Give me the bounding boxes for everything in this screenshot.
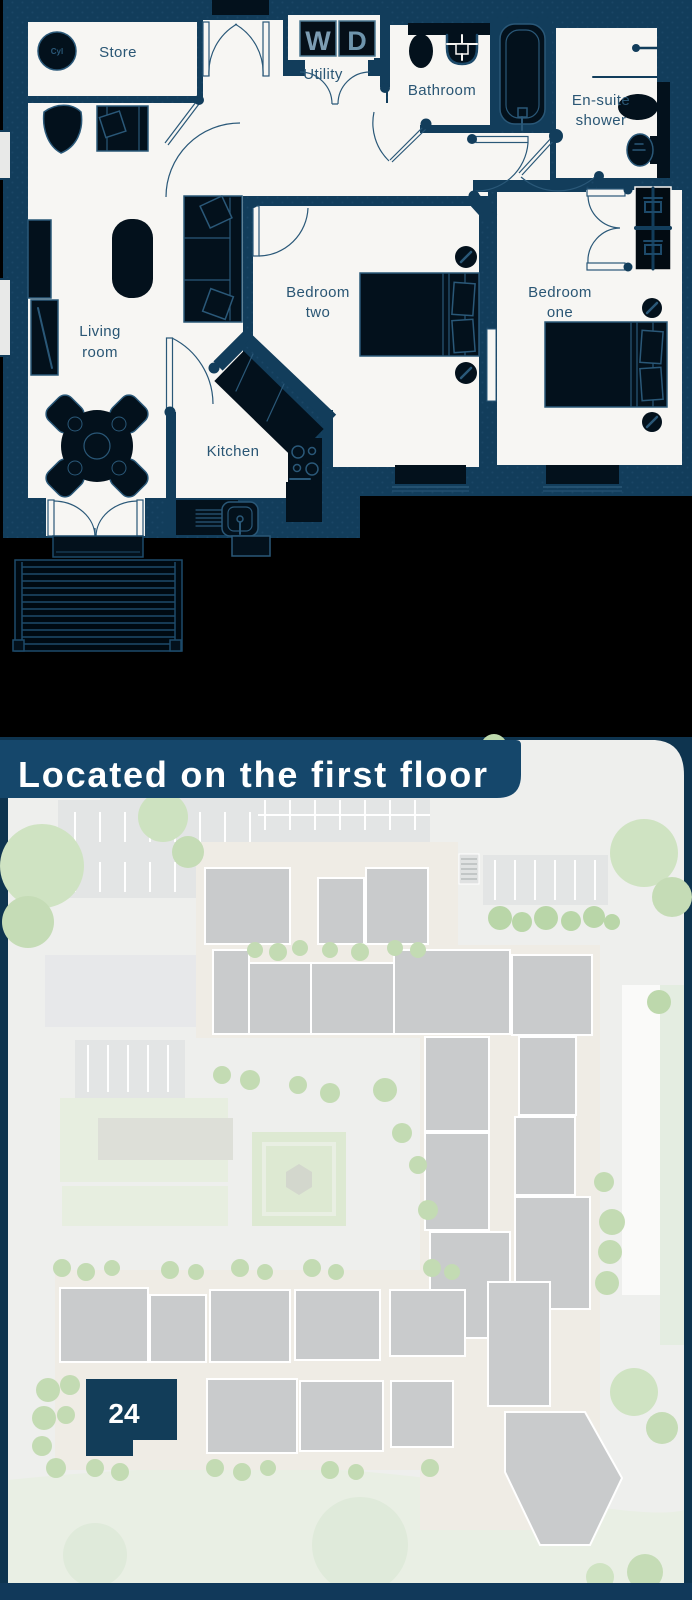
svg-text:Utility: Utility — [303, 66, 343, 83]
svg-text:shower: shower — [576, 112, 627, 129]
svg-text:24: 24 — [108, 1398, 140, 1429]
svg-text:W: W — [305, 26, 331, 56]
svg-text:Kitchen: Kitchen — [207, 443, 260, 460]
svg-text:En-suite: En-suite — [572, 92, 630, 109]
svg-text:Store: Store — [99, 44, 137, 61]
svg-text:Living: Living — [79, 323, 121, 340]
svg-text:Bathroom: Bathroom — [408, 82, 476, 99]
svg-text:Located on the first floor: Located on the first floor — [18, 754, 489, 795]
svg-text:D: D — [347, 26, 367, 56]
svg-text:room: room — [82, 344, 118, 361]
svg-text:one: one — [547, 304, 573, 321]
svg-text:Cyl: Cyl — [51, 47, 63, 56]
svg-text:two: two — [306, 304, 331, 321]
svg-text:Bedroom: Bedroom — [286, 284, 350, 301]
svg-text:Bedroom: Bedroom — [528, 284, 592, 301]
